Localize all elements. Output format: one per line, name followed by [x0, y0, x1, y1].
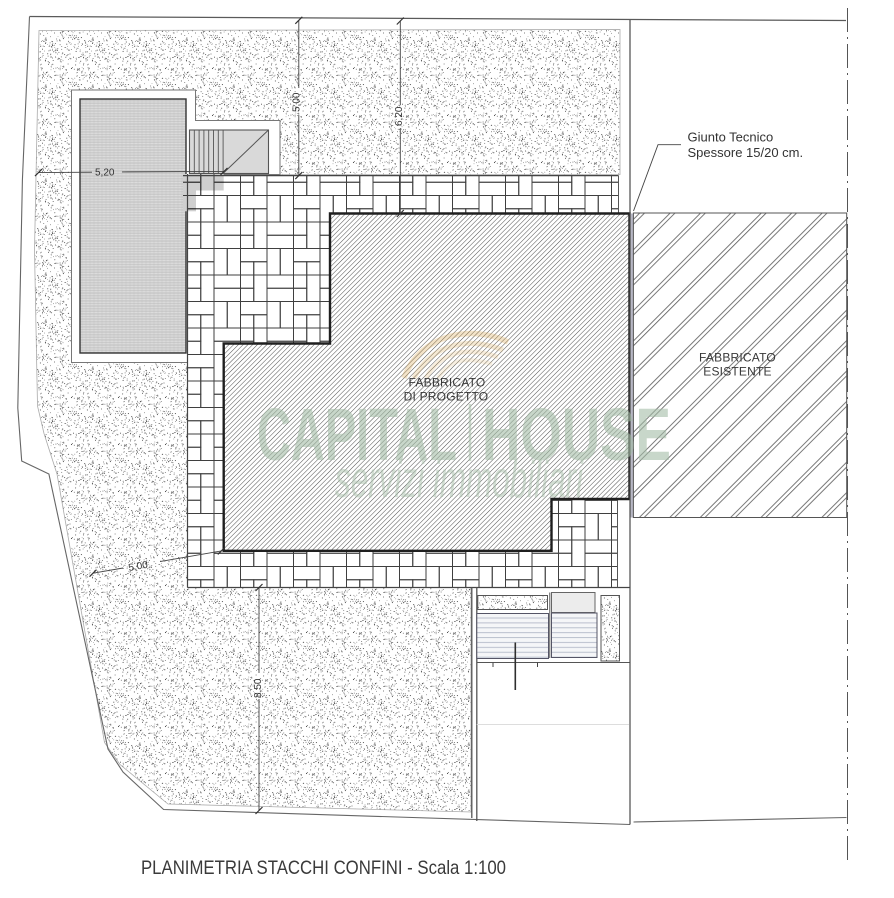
svg-text:5,00: 5,00 — [292, 92, 303, 112]
svg-text:ESISTENTE: ESISTENTE — [703, 365, 771, 379]
svg-text:5,20: 5,20 — [95, 168, 115, 179]
svg-text:Giunto Tecnico: Giunto Tecnico — [688, 130, 774, 145]
svg-text:DI PROGETTO: DI PROGETTO — [404, 390, 489, 404]
svg-text:Spessore 15/20 cm.: Spessore 15/20 cm. — [688, 145, 804, 160]
svg-text:PLANIMETRIA STACCHI CONFINI -: PLANIMETRIA STACCHI CONFINI - Scala 1:10… — [141, 857, 506, 879]
svg-text:servizi immobiliari: servizi immobiliari — [335, 451, 584, 509]
svg-text:6,20: 6,20 — [394, 106, 405, 126]
svg-text:8,50: 8,50 — [253, 678, 264, 698]
svg-text:FABBRICATO: FABBRICATO — [699, 351, 776, 365]
svg-text:FABBRICATO: FABBRICATO — [409, 376, 486, 390]
